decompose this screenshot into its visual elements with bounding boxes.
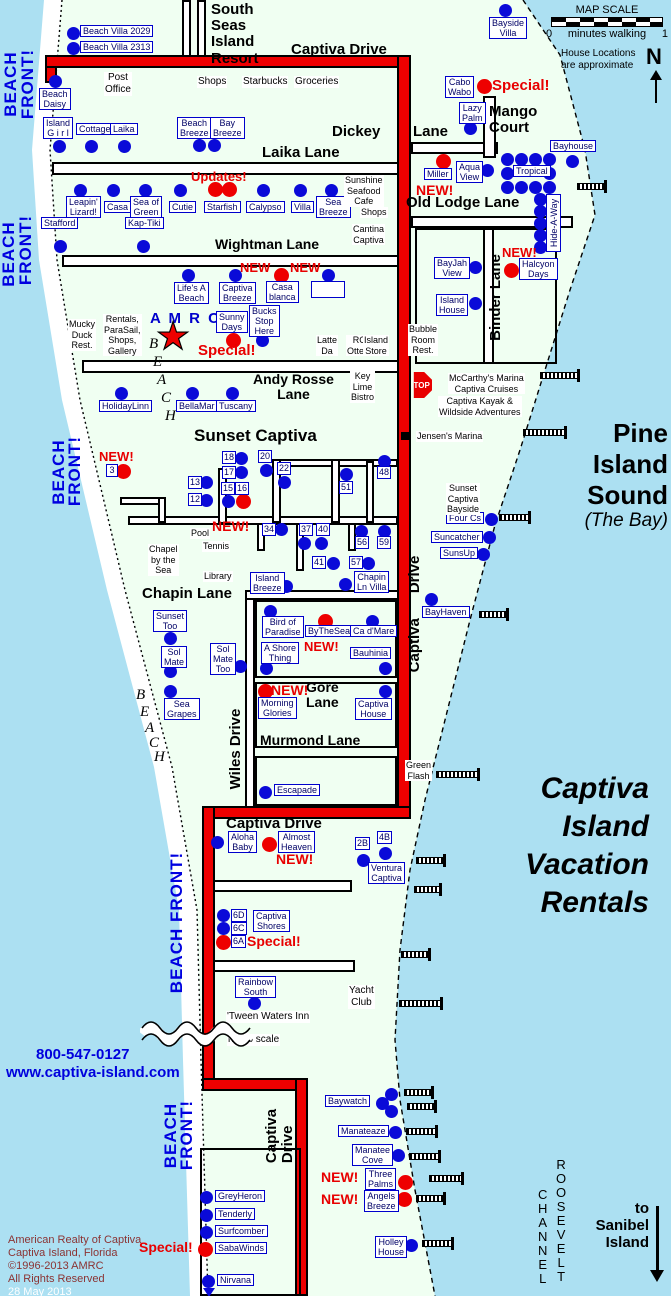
map-dot-red[interactable] xyxy=(504,263,519,278)
map-dot-blue[interactable] xyxy=(385,1105,398,1118)
unit-13[interactable]: 13 xyxy=(188,476,202,489)
map-dot-blue[interactable] xyxy=(485,513,498,526)
marker-casa-blanca[interactable]: Casa blanca xyxy=(266,281,299,303)
poi-groceries: Groceries xyxy=(294,76,339,88)
map-dot-blue[interactable] xyxy=(340,468,353,481)
map-dot-blue[interactable] xyxy=(208,139,221,152)
dock-end xyxy=(564,426,567,439)
map-dot-blue[interactable] xyxy=(379,685,392,698)
map-date: 28 May 2013 xyxy=(8,1286,72,1296)
map-dot-red[interactable] xyxy=(262,837,277,852)
unit-15[interactable]: 15 xyxy=(221,482,235,495)
channel-label: R O O S E V E L T xyxy=(556,1158,566,1284)
dock-icon xyxy=(406,1128,436,1135)
dock-icon xyxy=(479,611,507,618)
marker-angels-breeze[interactable]: Angels Breeze xyxy=(364,1190,399,1212)
map-dot-blue[interactable] xyxy=(53,140,66,153)
dock-end xyxy=(604,180,607,193)
marker-nirvana[interactable]: Nirvana xyxy=(217,1274,254,1286)
marker-beach-daisy[interactable]: Beach Daisy xyxy=(39,88,71,110)
poi-mccarthy-s-marina-captiva-cruises: McCarthy's Marina Captiva Cruises xyxy=(448,373,525,394)
dock-icon xyxy=(540,372,578,379)
marker-sabawinds[interactable]: SabaWinds xyxy=(215,1242,267,1254)
beach-letter: C xyxy=(161,390,171,407)
poi-rentals-parasail-shops-gallery: Rentals, ParaSail, Shops, Gallery xyxy=(103,314,142,356)
beachfront-label: FRONT! xyxy=(17,200,34,300)
website-link[interactable]: www.captiva-island.com xyxy=(6,1064,180,1081)
unit-16[interactable]: 16 xyxy=(235,482,249,495)
marker-manateaze[interactable]: Manateaze xyxy=(338,1125,389,1137)
dock-end xyxy=(435,1125,438,1138)
page-title: Captiva Island Vacation Rentals xyxy=(525,770,649,922)
marker-life-s-a-beach[interactable]: Life's A Beach xyxy=(174,282,209,304)
marker-manatee-cove[interactable]: Manatee Cove xyxy=(352,1144,393,1166)
marker-island-g-i-r-l[interactable]: Island G i r l xyxy=(43,117,73,139)
captiva-island-rental-map: MAP SCALE 0 minutes walking 1 House Loca… xyxy=(0,0,671,1296)
badge-new: NEW! xyxy=(304,639,339,654)
marker-morning-glories[interactable]: Morning Glories xyxy=(258,697,297,719)
map-dot-blue[interactable] xyxy=(327,557,340,570)
marker-captiva-house[interactable]: Captiva House xyxy=(355,698,392,720)
badge-new: NEW! xyxy=(502,245,537,260)
poi-library: Library xyxy=(203,571,233,582)
marker-tropical[interactable]: Tropical xyxy=(513,165,551,177)
dock-icon xyxy=(404,1089,432,1096)
unit-56[interactable]: 56 xyxy=(355,536,369,549)
map-dot-blue[interactable] xyxy=(193,139,206,152)
marker-aqua-view[interactable]: Aqua View xyxy=(456,161,483,183)
block-outline xyxy=(255,756,397,806)
map-dot-blue[interactable] xyxy=(477,548,490,561)
dock-end xyxy=(528,511,531,524)
poi-shops: Shops xyxy=(360,207,388,218)
map-scale-title: MAP SCALE xyxy=(551,4,663,16)
nirvana-arrow-icon xyxy=(203,1288,215,1296)
marker-sol-mate-too[interactable]: Sol Mate Too xyxy=(210,643,236,675)
dock-end xyxy=(428,948,431,961)
dock-icon xyxy=(422,1240,452,1247)
road-label-binder-lane: Binder Lane xyxy=(488,250,504,345)
beach-letter: B xyxy=(136,687,145,704)
dock-icon xyxy=(523,429,565,436)
marker-calypso[interactable]: Calypso xyxy=(246,201,285,213)
dock-end xyxy=(431,1086,434,1099)
marker-captiva-shores[interactable]: Captiva Shores xyxy=(253,910,290,932)
map-dot-blue[interactable] xyxy=(235,466,248,479)
dock-icon xyxy=(409,1153,439,1160)
marker-bay-breeze[interactable]: Bay Breeze xyxy=(210,117,245,139)
marker-rainbow-south[interactable]: Rainbow South xyxy=(235,976,276,998)
beach-letter: H xyxy=(154,749,165,766)
not-to-scale-squiggle xyxy=(140,1012,255,1056)
sanibel-arrow-icon xyxy=(650,1270,664,1282)
marker-bythesea[interactable]: ByTheSea xyxy=(305,625,353,637)
road-label-captiva-drive: Captiva Drive xyxy=(226,816,322,832)
dock-end xyxy=(506,608,509,621)
map-dot-blue[interactable] xyxy=(235,452,248,465)
marker-aloha-baby[interactable]: Aloha Baby xyxy=(228,831,257,853)
map-dot-blue[interactable] xyxy=(182,269,195,282)
to-sanibel-island-label: to Sanibel Island xyxy=(596,1200,649,1251)
unit-4b[interactable]: 4B xyxy=(377,831,392,844)
dock-icon xyxy=(416,1195,444,1202)
road-label-captiva-drive: Captiva Drive xyxy=(291,42,387,58)
marker-item[interactable] xyxy=(311,281,345,298)
map-scale-bar xyxy=(551,17,663,27)
marker-bird-of-paradise[interactable]: Bird of Paradise xyxy=(262,616,304,638)
unit-6c[interactable]: 6C xyxy=(231,922,247,935)
map-dot-blue[interactable] xyxy=(137,240,150,253)
marker-lazy-palm[interactable]: Lazy Palm xyxy=(459,102,486,124)
map-dot-blue[interactable] xyxy=(259,786,272,799)
marker-three-palms[interactable]: Three Palms xyxy=(365,1168,396,1190)
map-dot-blue[interactable] xyxy=(260,464,273,477)
scale-zero: 0 xyxy=(546,28,552,40)
unit-59[interactable]: 59 xyxy=(377,536,391,549)
poi-tennis: Tennis xyxy=(202,541,230,552)
marker-suncatcher[interactable]: Suncatcher xyxy=(431,531,483,543)
marker-sunsup[interactable]: SunsUp xyxy=(440,547,478,559)
map-dot-blue[interactable] xyxy=(315,537,328,550)
map-dot-blue[interactable] xyxy=(222,495,235,508)
map-dot-red[interactable] xyxy=(236,494,251,509)
poi-bubble-room-rest: Bubble Room Rest. xyxy=(408,324,438,356)
marker-cottage[interactable]: Cottage xyxy=(76,123,114,135)
dock-end xyxy=(577,369,580,382)
unit-3[interactable]: 3 xyxy=(106,464,118,477)
badge-new: NEW! xyxy=(321,1169,358,1185)
copyright-text: American Realty of Captiva Captiva Islan… xyxy=(8,1234,141,1286)
road-label-murmond-lane: Murmond Lane xyxy=(260,733,360,748)
beachfront-label: FRONT! xyxy=(66,428,83,514)
map-dot-blue[interactable] xyxy=(248,997,261,1010)
map-dot-blue[interactable] xyxy=(483,531,496,544)
marker-sunset-too[interactable]: Sunset Too xyxy=(153,610,187,632)
map-dot-blue[interactable] xyxy=(392,1149,405,1162)
poi-shops: Shops xyxy=(197,76,227,88)
poi-mucky-duck-rest: Mucky Duck Rest. xyxy=(68,319,96,351)
marker-sunny-days[interactable]: Sunny Days xyxy=(216,311,248,333)
poi-jensen-s-marina: Jensen's Marina xyxy=(416,431,483,442)
map-dot-blue[interactable] xyxy=(211,836,224,849)
road-label-mango-court: Mango Court xyxy=(489,104,537,136)
marker-cutie[interactable]: Cutie xyxy=(169,201,196,213)
road-segment xyxy=(197,0,206,58)
marker-miller[interactable]: Miller xyxy=(424,168,452,180)
poi-green-flash: Green Flash xyxy=(405,760,432,781)
road-label-wightman-lane: Wightman Lane xyxy=(215,237,319,252)
road-label-captiva-drive: Captiva Drive xyxy=(262,1086,298,1186)
marker-bauhinia[interactable]: Bauhinia xyxy=(350,647,391,659)
map-dot-blue[interactable] xyxy=(217,909,230,922)
marker-chapin-ln-villa[interactable]: Chapin Ln Villa xyxy=(354,571,389,593)
marker-sol-mate[interactable]: Sol Mate xyxy=(161,646,187,668)
marker-baywatch[interactable]: Baywatch xyxy=(325,1095,370,1107)
map-dot-blue[interactable] xyxy=(275,523,288,536)
north-arrow-stem xyxy=(655,79,657,103)
unit-57[interactable]: 57 xyxy=(349,556,363,569)
marker-tuscany[interactable]: Tuscany xyxy=(216,400,256,412)
marker-beach-villa-2029[interactable]: Beach Villa 2029 xyxy=(80,25,153,37)
badge-special: Special! xyxy=(492,77,550,94)
dock-end xyxy=(439,883,442,896)
marker-sea-of-green[interactable]: Sea of Green xyxy=(130,196,162,218)
map-dot-blue[interactable] xyxy=(49,75,62,88)
map-dot-blue[interactable] xyxy=(298,537,311,550)
map-dot-blue[interactable] xyxy=(566,155,579,168)
map-dot-red[interactable] xyxy=(398,1175,413,1190)
map-dot-blue[interactable] xyxy=(217,922,230,935)
dock-end xyxy=(443,854,446,867)
unit-6a[interactable]: 6A xyxy=(231,935,246,948)
unit-18[interactable]: 18 xyxy=(222,451,236,464)
map-dot-blue[interactable] xyxy=(200,1191,213,1204)
map-dot-blue[interactable] xyxy=(278,476,291,489)
poi-sunset-captiva-bayside: Sunset Captiva Bayside xyxy=(446,483,480,515)
road-segment xyxy=(207,960,355,972)
badge-new: NEW xyxy=(240,260,270,275)
badge-new: NEW! xyxy=(271,682,308,698)
road-segment xyxy=(158,497,166,523)
map-dot-blue[interactable] xyxy=(164,632,177,645)
map-dot-blue[interactable] xyxy=(515,181,528,194)
map-dot-blue[interactable] xyxy=(339,578,352,591)
marker-surfcomber[interactable]: Surfcomber xyxy=(215,1225,268,1237)
marker-bayhaven[interactable]: BayHaven xyxy=(422,606,470,618)
marker-stafford[interactable]: Stafford xyxy=(41,217,78,229)
marker-halcyon-days[interactable]: Halcyon Days xyxy=(519,258,558,280)
scale-unit: minutes walking xyxy=(568,28,646,40)
road-segment xyxy=(366,461,374,523)
road-label-dickey: Dickey xyxy=(332,124,380,140)
marker-holidaylinn[interactable]: HolidayLinn xyxy=(99,400,152,412)
map-dot-red[interactable] xyxy=(397,1192,412,1207)
poi-latte-da: Latte Da xyxy=(316,335,338,356)
map-dot-blue[interactable] xyxy=(425,593,438,606)
road-label-laika-lane: Laika Lane xyxy=(262,145,340,161)
map-dot-blue[interactable] xyxy=(107,184,120,197)
dock-icon xyxy=(499,514,529,521)
badge-new: NEW! xyxy=(212,518,249,534)
unit-12[interactable]: 12 xyxy=(188,493,202,506)
beach-letter: H xyxy=(165,408,176,425)
map-dot-blue[interactable] xyxy=(501,181,514,194)
map-dot-blue[interactable] xyxy=(67,42,80,55)
dock-icon xyxy=(407,1103,435,1110)
map-dot-blue[interactable] xyxy=(226,387,239,400)
road-label-andy-rosse-lane: Andy Rosse Lane xyxy=(253,372,334,402)
map-dot-red[interactable] xyxy=(477,79,492,94)
map-dot-blue[interactable] xyxy=(164,685,177,698)
road-label-sunset-captiva: Sunset Captiva xyxy=(194,427,317,445)
dock-icon xyxy=(401,951,429,958)
pine-island-sound-label: Pine Island Sound xyxy=(587,418,668,511)
beachfront-label: FRONT! xyxy=(19,38,36,130)
road-segment xyxy=(182,0,191,58)
unit-41[interactable]: 41 xyxy=(312,556,326,569)
marker-laika[interactable]: Laika xyxy=(110,123,138,135)
dock-icon xyxy=(416,857,444,864)
sanibel-arrow-stem xyxy=(656,1206,659,1272)
map-dot-blue[interactable] xyxy=(54,240,67,253)
north-label: N xyxy=(646,44,662,70)
marker-hide-a-way[interactable]: Hide-A-Way xyxy=(546,194,561,252)
dock-end xyxy=(443,1192,446,1205)
marker-island-breeze[interactable]: Island Breeze xyxy=(250,572,285,594)
marker-captiva-breeze[interactable]: Captiva Breeze xyxy=(219,282,256,304)
marker-bayjah-view[interactable]: BayJah View xyxy=(434,257,470,279)
badge-new: NEW xyxy=(290,260,320,275)
map-dot-blue[interactable] xyxy=(67,27,80,40)
marker-greyheron[interactable]: GreyHeron xyxy=(215,1190,265,1202)
map-dot-red[interactable] xyxy=(216,935,231,950)
beachfront-label: BEACH xyxy=(2,40,19,128)
phone-number: 800-547-0127 xyxy=(36,1046,129,1063)
marker-almost-heaven[interactable]: Almost Heaven xyxy=(278,831,315,853)
unit-20[interactable]: 20 xyxy=(258,450,272,463)
map-dot-blue[interactable] xyxy=(543,181,556,194)
map-dot-blue[interactable] xyxy=(389,1126,402,1139)
dock-end xyxy=(461,1172,464,1185)
map-dot-blue[interactable] xyxy=(257,184,270,197)
unit-34[interactable]: 34 xyxy=(262,523,276,536)
badge-new: NEW! xyxy=(276,851,313,867)
beachfront-label: BEACH xyxy=(0,208,17,300)
dock-icon xyxy=(429,1175,462,1182)
badge-new: NEW! xyxy=(99,449,134,464)
unit-48[interactable]: 48 xyxy=(377,466,391,479)
map-dot-blue[interactable] xyxy=(115,387,128,400)
poi-starbucks: Starbucks xyxy=(242,76,288,88)
road-segment xyxy=(245,590,255,808)
unit-37[interactable]: 37 xyxy=(299,523,313,536)
road-label-south-seas-island-resort: South Seas Island Resort xyxy=(211,2,259,67)
dock-icon xyxy=(436,771,478,778)
unit-6d[interactable]: 6D xyxy=(231,909,247,922)
marker-sea-grapes[interactable]: Sea Grapes xyxy=(164,698,200,720)
poi-island-store: Island Store xyxy=(363,335,389,356)
marker-bellamar[interactable]: BellaMar xyxy=(176,400,218,412)
map-dot-blue[interactable] xyxy=(379,662,392,675)
map-dot-blue[interactable] xyxy=(200,1226,213,1239)
poi-captiva-kayak-wildside-adventures: Captiva Kayak & Wildside Adventures xyxy=(438,396,522,417)
marker-ca-d-mare[interactable]: Ca d'Mare xyxy=(350,625,397,637)
map-dot-blue[interactable] xyxy=(379,847,392,860)
scale-one: 1 xyxy=(662,28,668,40)
beachfront-label: BEACH FRONT! xyxy=(168,815,185,1030)
road-label-wiles-drive: Wiles Drive xyxy=(227,698,245,800)
road-label-lane: Lane xyxy=(413,124,448,140)
dock-end xyxy=(434,1100,437,1113)
map-dot-blue[interactable] xyxy=(202,1275,215,1288)
badge-special: Special! xyxy=(247,933,301,949)
badge-updates: Updates! xyxy=(191,169,247,184)
road-label-gore-lane: Gore Lane xyxy=(306,680,339,710)
map-dot-blue[interactable] xyxy=(200,1209,213,1222)
marker-holley-house[interactable]: Holley House xyxy=(375,1236,407,1258)
house-location-note: House Locations are approximate xyxy=(561,48,636,71)
map-dot-red[interactable] xyxy=(222,182,237,197)
road-segment xyxy=(62,255,403,267)
road-label-captiva-drive: Captiva Drive xyxy=(407,528,424,700)
map-dot-blue[interactable] xyxy=(186,387,199,400)
dock-end xyxy=(477,768,480,781)
map-dot-blue[interactable] xyxy=(85,140,98,153)
map-dot-red[interactable] xyxy=(116,464,131,479)
beachfront-label: FRONT! xyxy=(178,1090,195,1180)
map-dot-blue[interactable] xyxy=(118,140,131,153)
beach-letter: A xyxy=(157,372,166,389)
map-dot-red[interactable] xyxy=(436,154,451,169)
dock-icon xyxy=(399,1000,441,1007)
the-bay-label: (The Bay) xyxy=(585,510,668,532)
map-dot-blue[interactable] xyxy=(294,184,307,197)
road-segment xyxy=(207,880,352,892)
marker-ventura-captiva[interactable]: Ventura Captiva xyxy=(368,862,405,884)
map-dot-blue[interactable] xyxy=(469,261,482,274)
map-dot-blue[interactable] xyxy=(174,184,187,197)
unit-2b[interactable]: 2B xyxy=(355,837,370,850)
marker-starfish[interactable]: Starfish xyxy=(204,201,241,213)
map-dot-blue[interactable] xyxy=(499,4,512,17)
marina-mark xyxy=(401,432,411,440)
dock-end xyxy=(451,1237,454,1250)
poi-key-lime-bistro: Key Lime Bistro xyxy=(350,371,375,403)
marker-kap-tiki[interactable]: Kap-Tiki xyxy=(125,217,164,229)
marker-leapin-lizard[interactable]: Leapin' Lizard! xyxy=(66,196,101,218)
poi-post-office: Post Office xyxy=(104,72,132,96)
marker-casa[interactable]: Casa xyxy=(104,201,131,213)
marker-a-shore-thing[interactable]: A Shore Thing xyxy=(261,642,299,664)
badge-new: NEW! xyxy=(416,182,453,198)
poi-pool: Pool xyxy=(190,528,210,539)
channel-label: C H A N N E L xyxy=(538,1188,547,1286)
unit-17[interactable]: 17 xyxy=(222,466,236,479)
unit-22[interactable]: 22 xyxy=(277,462,291,475)
dock-icon xyxy=(577,183,605,190)
poi-yacht-club: Yacht Club xyxy=(348,985,375,1009)
dock-end xyxy=(438,1150,441,1163)
marker-villa[interactable]: Villa xyxy=(291,201,314,213)
map-dot-blue[interactable] xyxy=(469,297,482,310)
marker-beach-breeze[interactable]: Beach Breeze xyxy=(177,117,212,139)
marker-bayhouse[interactable]: Bayhouse xyxy=(550,140,596,152)
badge-new: NEW! xyxy=(321,1191,358,1207)
unit-40[interactable]: 40 xyxy=(316,523,330,536)
marker-island-house[interactable]: Island House xyxy=(436,294,468,316)
dock-end xyxy=(440,997,443,1010)
map-dot-blue[interactable] xyxy=(362,557,375,570)
poi-sunshine-seafood-cafe: Sunshine Seafood Cafe xyxy=(344,175,384,207)
map-dot-red[interactable] xyxy=(198,1242,213,1257)
marker-beach-villa-2313[interactable]: Beach Villa 2313 xyxy=(80,41,153,53)
road-label-chapin-lane: Chapin Lane xyxy=(142,586,232,602)
poi-chapel-by-the-sea: Chapel by the Sea xyxy=(148,544,179,576)
badge-special: Special! xyxy=(198,342,256,359)
marker-tenderly[interactable]: Tenderly xyxy=(215,1208,255,1220)
beach-letter: E xyxy=(140,704,149,721)
unit-51[interactable]: 51 xyxy=(339,481,353,494)
marker-bucks-stop-here[interactable]: Bucks Stop Here xyxy=(249,305,280,337)
dock-icon xyxy=(414,886,440,893)
map-dot-red[interactable] xyxy=(208,182,223,197)
map-dot-blue[interactable] xyxy=(385,1088,398,1101)
poi-cantina-captiva: Cantina Captiva xyxy=(352,224,385,245)
badge-special: Special! xyxy=(139,1239,193,1255)
marker-escapade[interactable]: Escapade xyxy=(274,784,320,796)
marker-bayside-villa[interactable]: Bayside Villa xyxy=(489,17,527,39)
marker-cabo-wabo[interactable]: Cabo Wabo xyxy=(445,76,474,98)
